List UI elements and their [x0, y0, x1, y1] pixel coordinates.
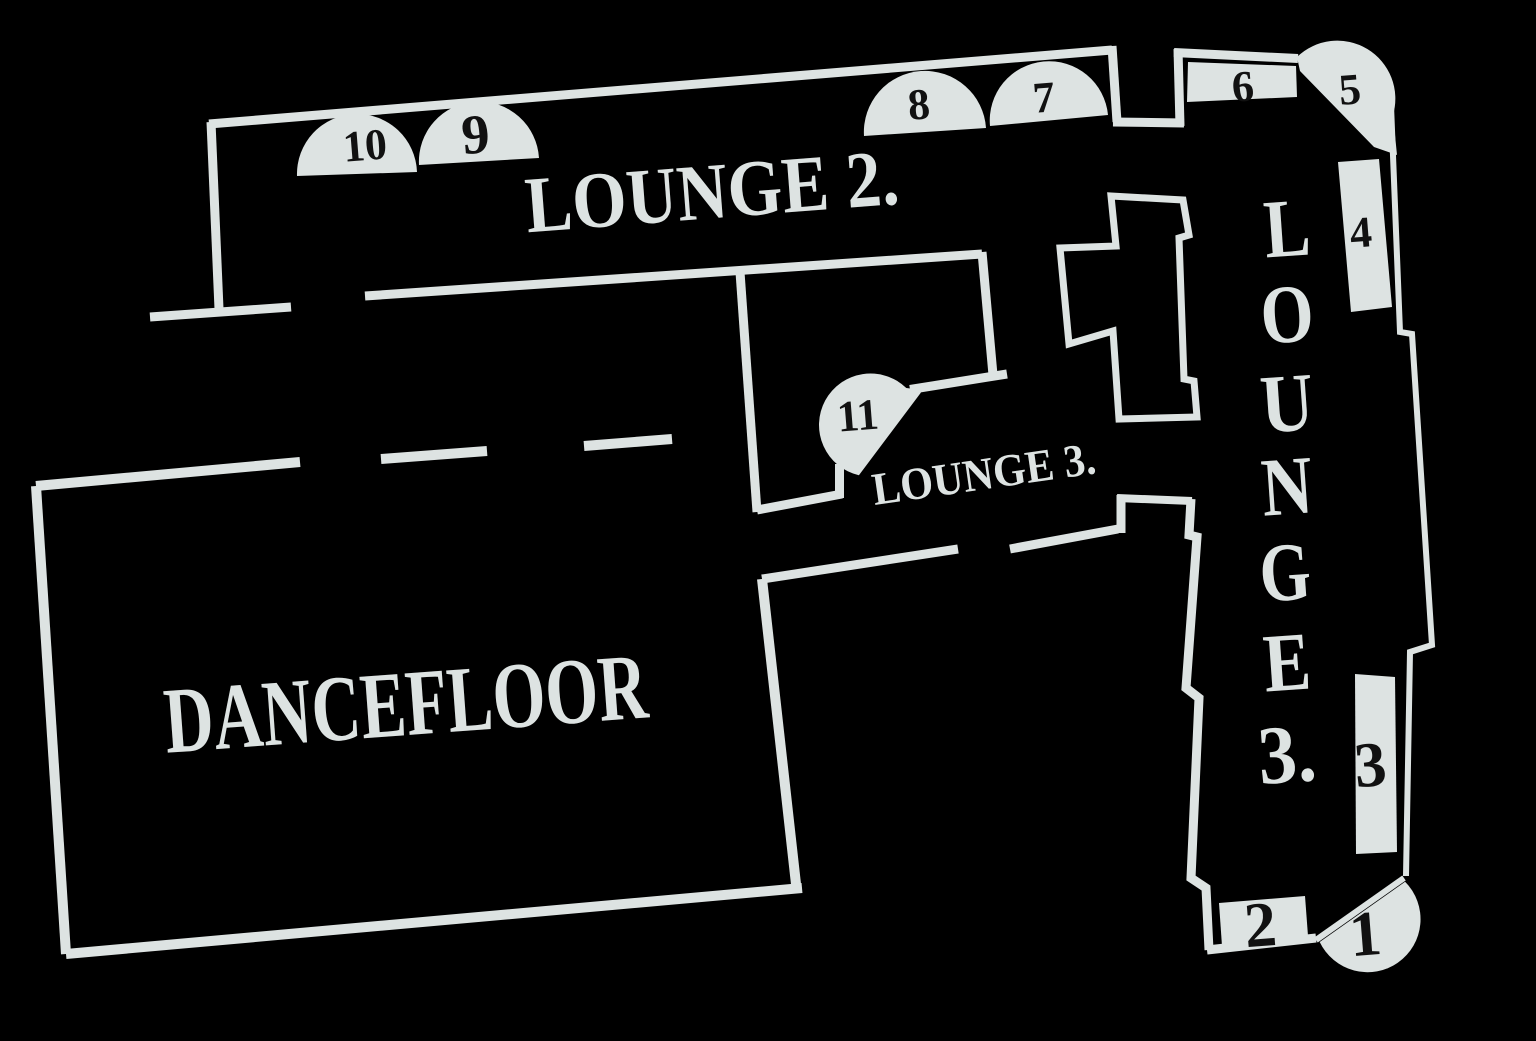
- svg-text:2: 2: [1242, 888, 1279, 961]
- svg-text:8: 8: [906, 79, 932, 130]
- svg-text:O: O: [1257, 266, 1316, 361]
- svg-text:6: 6: [1230, 61, 1256, 112]
- svg-text:U: U: [1257, 355, 1316, 450]
- svg-text:3.: 3.: [1255, 706, 1319, 802]
- svg-text:L: L: [1261, 181, 1313, 276]
- svg-text:1: 1: [1347, 897, 1384, 970]
- svg-text:11: 11: [835, 389, 880, 441]
- svg-text:E: E: [1260, 614, 1313, 709]
- svg-text:N: N: [1258, 438, 1315, 533]
- svg-text:4: 4: [1348, 207, 1374, 258]
- svg-text:7: 7: [1031, 72, 1057, 123]
- svg-text:9: 9: [459, 103, 492, 167]
- svg-text:G: G: [1256, 524, 1313, 619]
- svg-text:5: 5: [1337, 64, 1363, 115]
- svg-text:3: 3: [1352, 728, 1389, 801]
- svg-text:10: 10: [341, 119, 389, 171]
